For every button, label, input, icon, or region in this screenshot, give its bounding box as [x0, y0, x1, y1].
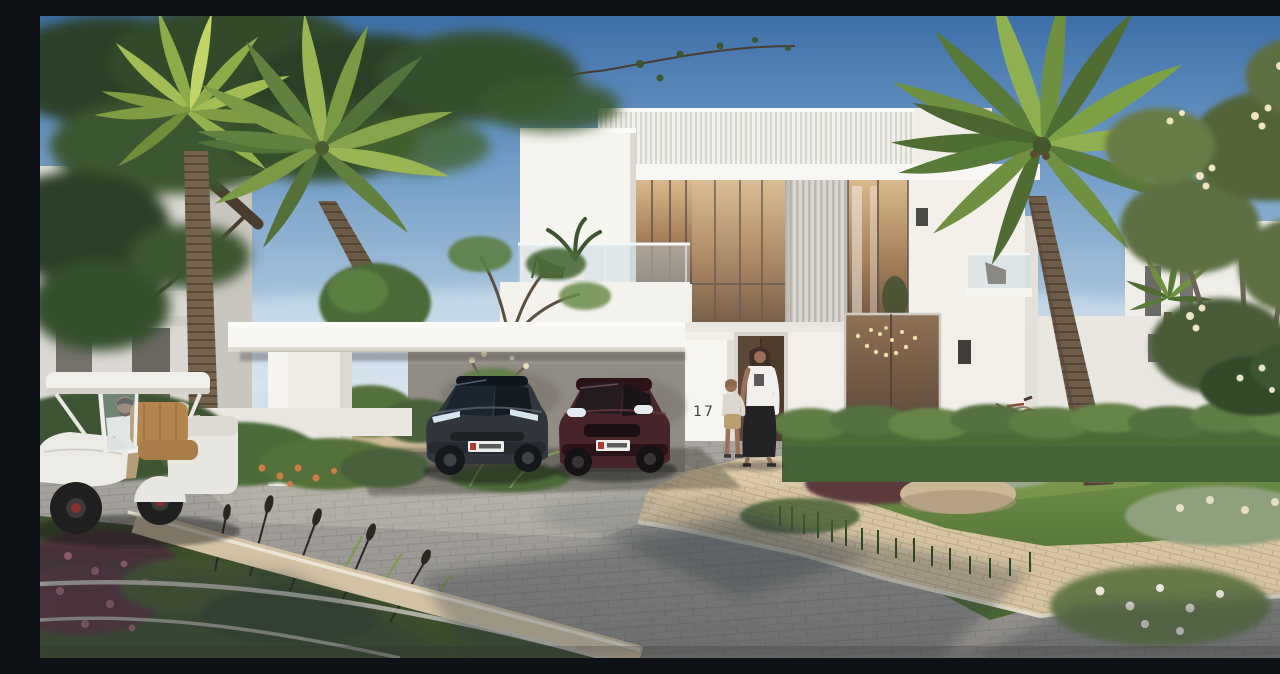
suv-license-plate [596, 440, 630, 451]
balcony-2 [965, 254, 1032, 297]
wall-sconce-icon [958, 340, 971, 364]
villa-render-image: 17 [40, 16, 1280, 658]
suv-headlight [634, 405, 653, 414]
house-number: 17 [693, 404, 715, 420]
wall-sconce-icon [916, 208, 928, 226]
bottom-edge-shade [40, 646, 1280, 658]
sedan-license-plate [468, 441, 504, 452]
suv-headlight [567, 408, 586, 417]
golf-cart-seats [130, 402, 198, 460]
